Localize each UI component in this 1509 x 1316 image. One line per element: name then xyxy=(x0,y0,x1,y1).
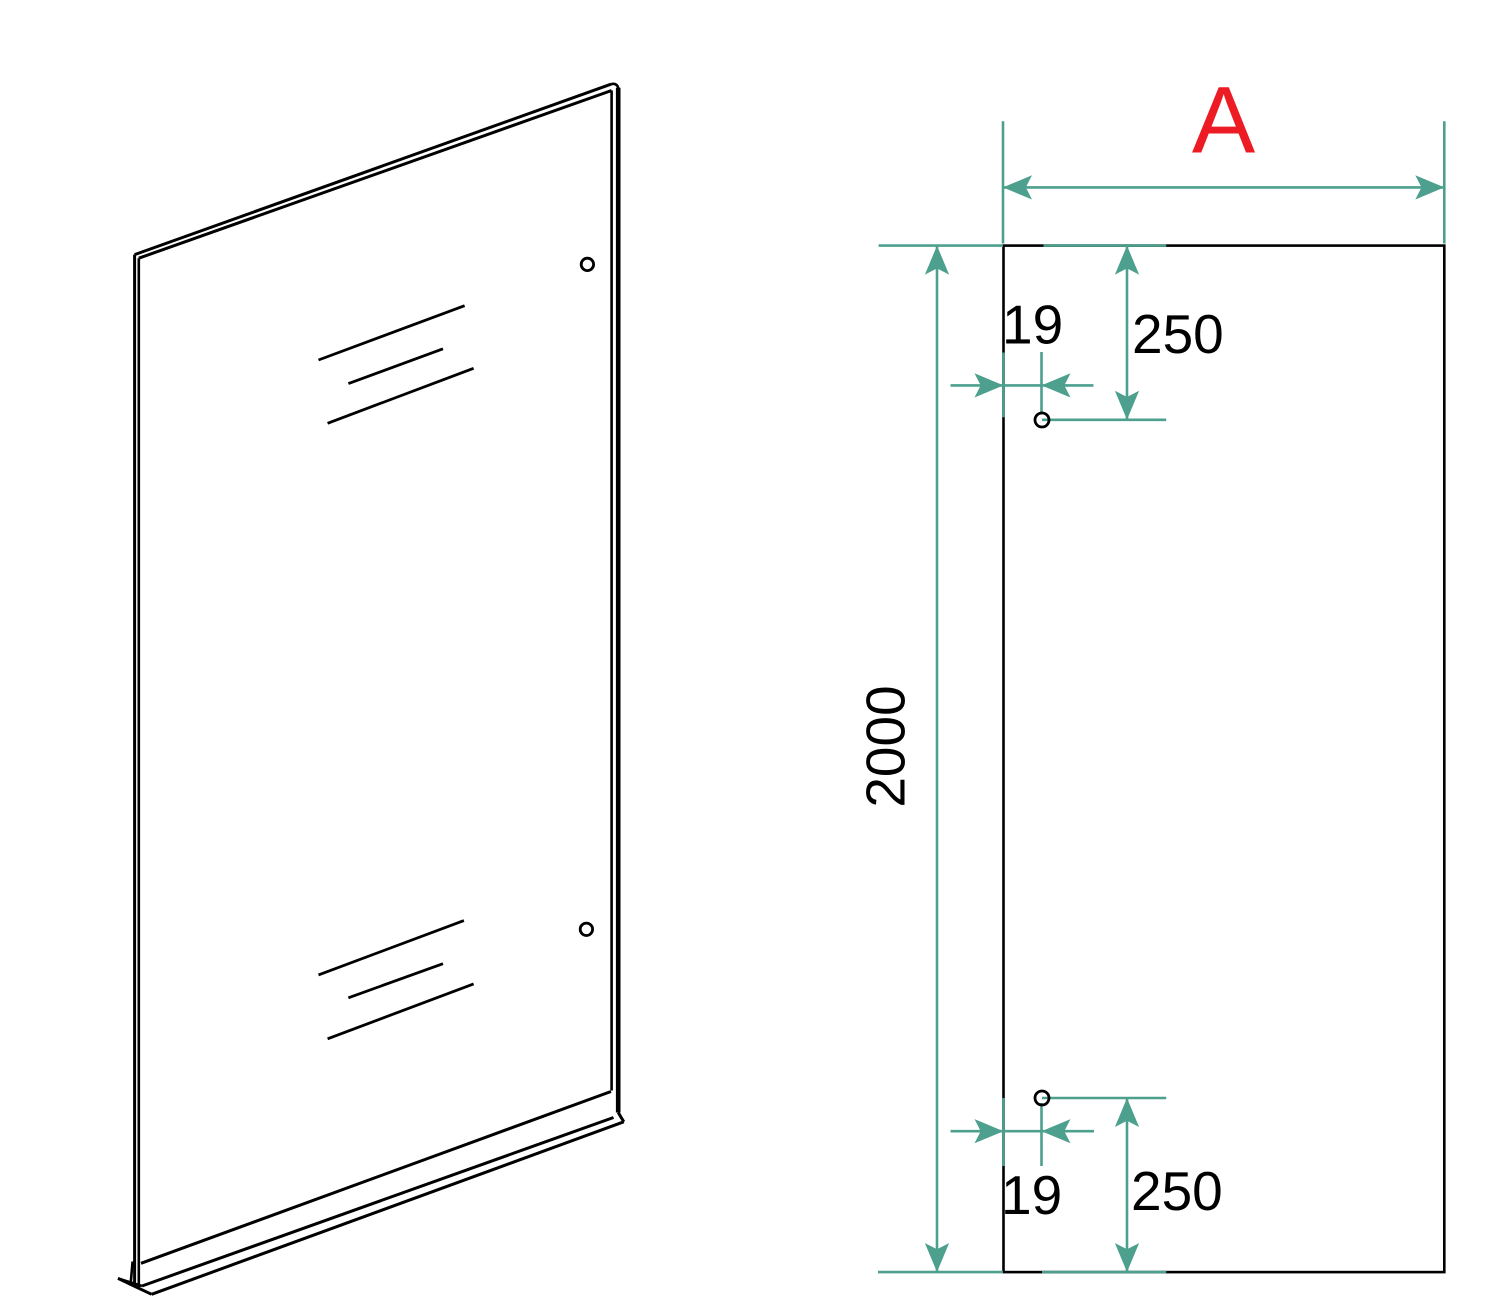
svg-text:2000: 2000 xyxy=(855,685,917,807)
svg-text:A: A xyxy=(1192,68,1256,174)
svg-text:19: 19 xyxy=(1001,1164,1062,1226)
svg-text:250: 250 xyxy=(1132,303,1224,365)
svg-text:250: 250 xyxy=(1131,1160,1223,1222)
svg-text:19: 19 xyxy=(1002,294,1063,356)
